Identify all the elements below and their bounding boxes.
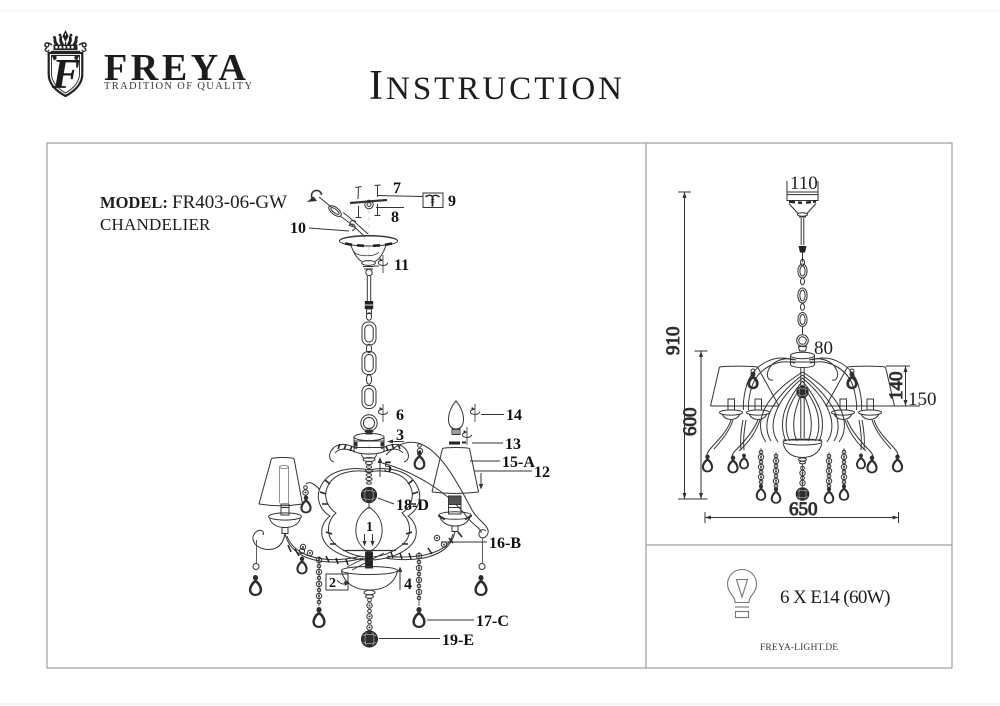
svg-text:MODEL:: MODEL: (100, 193, 168, 212)
svg-text:2: 2 (329, 576, 336, 591)
svg-text:F: F (51, 52, 80, 98)
svg-text:7: 7 (393, 180, 401, 197)
svg-text:8: 8 (391, 209, 399, 226)
svg-text:INSTRUCTION: INSTRUCTION (369, 63, 625, 109)
svg-text:10: 10 (290, 220, 306, 237)
svg-text:6: 6 (396, 407, 404, 424)
svg-text:4: 4 (404, 576, 412, 593)
svg-text:5: 5 (384, 459, 392, 476)
svg-text:13: 13 (505, 436, 521, 453)
svg-text:650: 650 (789, 499, 818, 520)
svg-text:150: 150 (908, 389, 937, 410)
svg-text:9: 9 (448, 193, 456, 210)
svg-text:600: 600 (680, 408, 701, 437)
svg-text:17-C: 17-C (476, 613, 509, 630)
svg-text:16-B: 16-B (489, 535, 521, 552)
svg-text:910: 910 (663, 327, 684, 356)
svg-text:1: 1 (366, 520, 373, 535)
svg-text:CHANDELIER: CHANDELIER (100, 215, 211, 234)
svg-text:11: 11 (394, 257, 409, 274)
svg-text:110: 110 (790, 173, 818, 194)
svg-text:6 X E14 (60W): 6 X E14 (60W) (780, 587, 890, 608)
svg-text:80: 80 (814, 338, 833, 359)
svg-text:15-A: 15-A (502, 454, 535, 471)
svg-text:19-E: 19-E (442, 632, 474, 649)
svg-text:TRADITION OF QUALITY: TRADITION OF QUALITY (104, 81, 253, 92)
svg-text:18-D: 18-D (396, 497, 429, 514)
svg-text:140: 140 (886, 372, 907, 401)
svg-text:FREYA-LIGHT.DE: FREYA-LIGHT.DE (760, 642, 838, 653)
svg-text:FR403-06-GW: FR403-06-GW (172, 192, 287, 213)
svg-text:12: 12 (534, 464, 550, 481)
svg-text:14: 14 (506, 407, 522, 424)
